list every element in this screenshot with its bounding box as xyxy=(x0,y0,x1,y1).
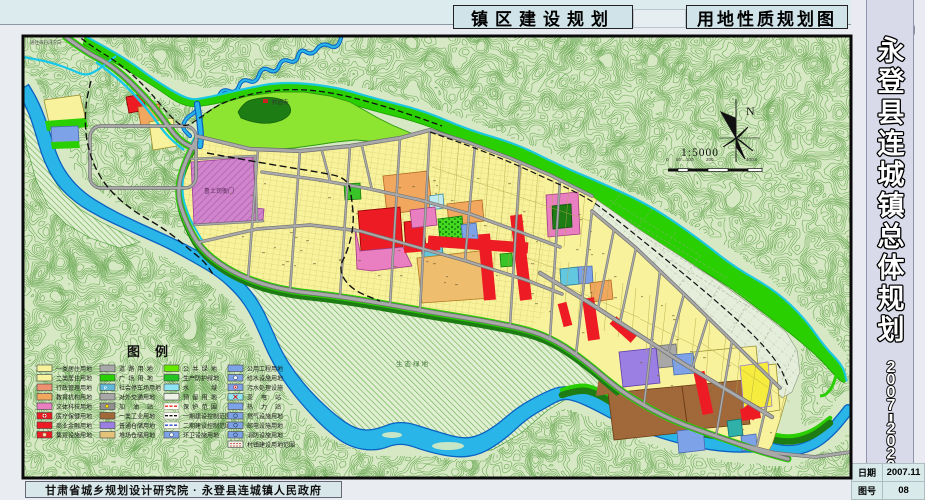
svg-text:变电站: 变电站 xyxy=(247,393,289,401)
svg-text:200: 200 xyxy=(706,157,714,162)
svg-text:广场用地: 广场用地 xyxy=(119,374,156,382)
svg-text:二类居住用地: 二类居住用地 xyxy=(56,374,92,382)
svg-text:教育机构用地: 教育机构用地 xyxy=(56,393,92,401)
svg-text:一期建设控制范围: 一期建设控制范围 xyxy=(183,412,231,420)
svg-text:对外交通用地: 对外交通用地 xyxy=(119,393,155,401)
svg-text:一类居住用地: 一类居住用地 xyxy=(56,365,92,373)
svg-text:一类工业用地: 一类工业用地 xyxy=(119,412,155,420)
svg-text:普通仓储用地: 普通仓储用地 xyxy=(119,422,155,430)
svg-text:文体科技用地: 文体科技用地 xyxy=(56,403,92,411)
svg-text:行政管理用地: 行政管理用地 xyxy=(56,384,92,392)
svg-text:100: 100 xyxy=(686,157,694,162)
svg-text:400m: 400m xyxy=(746,157,758,162)
svg-text:邮电设施用地: 邮电设施用地 xyxy=(247,422,283,430)
svg-text:给水设施用地: 给水设施用地 xyxy=(247,374,283,382)
svg-text:二期建设控制范围: 二期建设控制范围 xyxy=(183,422,231,430)
svg-text:鲁土司衙门: 鲁土司衙门 xyxy=(204,187,234,195)
svg-text:加油站: 加油站 xyxy=(119,403,161,411)
svg-text:保护范围: 保护范围 xyxy=(183,403,220,411)
svg-text:堆场仓储用地: 堆场仓储用地 xyxy=(119,431,155,439)
svg-text:预留用地: 预留用地 xyxy=(183,393,220,401)
svg-text:医疗保健用地: 医疗保健用地 xyxy=(56,412,92,420)
svg-text:生态绿地: 生态绿地 xyxy=(396,359,430,368)
svg-text:妙因寺: 妙因寺 xyxy=(272,98,289,106)
svg-text:通往海石湾方向: 通往海石湾方向 xyxy=(30,39,62,46)
svg-text:消防设施用地: 消防设施用地 xyxy=(247,431,283,439)
svg-text:商业金融用地: 商业金融用地 xyxy=(56,422,92,430)
svg-text:集贸设施用地: 集贸设施用地 xyxy=(56,431,92,439)
svg-text:公共绿地: 公共绿地 xyxy=(183,365,220,373)
svg-text:燃气设施用地: 燃气设施用地 xyxy=(247,412,283,420)
svg-text:50: 50 xyxy=(676,157,682,162)
svg-text:村镇建设用地范围: 村镇建设用地范围 xyxy=(247,441,295,449)
svg-text:公用工程用地: 公用工程用地 xyxy=(247,365,283,373)
svg-text:污水处理设施: 污水处理设施 xyxy=(247,384,283,392)
svg-text:生产防护绿地: 生产防护绿地 xyxy=(183,374,219,382)
svg-text:图例: 图例 xyxy=(127,344,183,359)
svg-text:道路用地: 道路用地 xyxy=(119,365,156,373)
svg-text:环卫设施用地: 环卫设施用地 xyxy=(183,431,219,439)
svg-text:P: P xyxy=(104,386,107,391)
svg-text:N: N xyxy=(746,104,755,118)
svg-text:社会停车场用地: 社会停车场用地 xyxy=(119,384,161,392)
svg-text:热力站: 热力站 xyxy=(247,403,289,411)
